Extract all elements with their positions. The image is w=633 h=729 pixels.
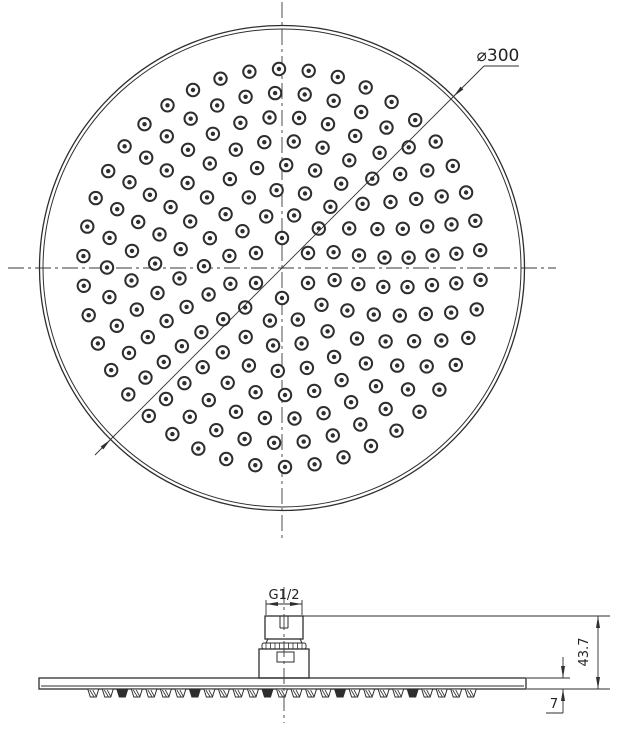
nozzle (335, 374, 347, 386)
nozzle (202, 288, 214, 300)
nozzle (391, 359, 403, 371)
nozzle (267, 339, 279, 351)
nozzle (239, 301, 251, 313)
nozzle (160, 393, 172, 405)
nozzle (184, 215, 196, 227)
nozzle (299, 187, 311, 199)
nozzle (356, 198, 368, 210)
nozzle (102, 165, 114, 177)
arrowhead-upper-right (454, 87, 464, 97)
nozzle (293, 112, 305, 124)
nozzle (217, 313, 229, 325)
nozzle (182, 144, 194, 156)
nozzle (161, 130, 173, 142)
nozzle (403, 141, 415, 153)
nozzle (409, 114, 421, 126)
nozzle (222, 377, 234, 389)
nozzle (149, 257, 161, 269)
nozzle (298, 435, 310, 447)
nozzle (408, 335, 420, 347)
nozzle (166, 428, 178, 440)
nozzle (378, 251, 390, 263)
arrowhead-thickness-top (561, 666, 565, 678)
nozzle (143, 410, 155, 422)
nozzle (132, 216, 144, 228)
nozzle (178, 377, 190, 389)
nozzle (210, 424, 222, 436)
nozzle (288, 209, 300, 221)
nozzle (435, 334, 447, 346)
nozzle (308, 458, 320, 470)
nozzle (139, 371, 151, 383)
nozzle (153, 228, 165, 240)
nozzle (474, 274, 486, 286)
nozzle (332, 71, 344, 83)
nozzle (279, 389, 291, 401)
nozzle (462, 332, 474, 344)
nozzle (394, 309, 406, 321)
diameter-dimension-label: ⌀300 (477, 46, 520, 66)
nozzle (243, 191, 255, 203)
nozzle (211, 99, 223, 111)
nozzle (327, 246, 339, 258)
nozzle (142, 331, 154, 343)
nozzle (180, 301, 192, 313)
nozzle (198, 260, 210, 272)
nozzle (125, 274, 137, 286)
nozzle (324, 201, 336, 213)
nozzle (351, 332, 363, 344)
nozzle (224, 173, 236, 185)
spray-nozzle-strip (88, 689, 476, 697)
nozzle (420, 308, 432, 320)
nozzle (240, 331, 252, 343)
nozzle (292, 313, 304, 325)
nozzle (250, 247, 262, 259)
arrowhead-thickness-bottom (561, 689, 565, 701)
nozzle (236, 225, 248, 237)
nozzle (207, 128, 219, 140)
nozzle (268, 437, 280, 449)
side-view: G1/2 43.7 7 (39, 587, 610, 723)
nozzle (295, 337, 307, 349)
nozzle (173, 272, 185, 284)
nozzle (249, 386, 261, 398)
serration-tooth (117, 689, 128, 697)
nozzle (219, 208, 231, 220)
nozzle (316, 142, 328, 154)
nozzle (280, 159, 292, 171)
nozzle (264, 314, 276, 326)
nozzle (394, 168, 406, 180)
nozzle (380, 403, 392, 415)
nozzle (474, 244, 486, 256)
nozzle (243, 66, 255, 78)
nozzle (402, 252, 414, 264)
nozzle (151, 287, 163, 299)
nozzle (101, 261, 113, 273)
nozzle (352, 278, 364, 290)
nozzle (379, 335, 391, 347)
nozzle (185, 113, 197, 125)
nozzle (138, 118, 150, 130)
nozzle (421, 220, 433, 232)
nozzle (426, 249, 438, 261)
nozzle (447, 160, 459, 172)
nozzle (118, 140, 130, 152)
nozzle (161, 164, 173, 176)
nozzle (83, 309, 95, 321)
nozzle (81, 220, 93, 232)
nozzle (184, 411, 196, 423)
nozzle (450, 359, 462, 371)
technical-drawing-sheet: ⌀300 (0, 0, 633, 729)
nozzle (260, 210, 272, 222)
serration-tooth (189, 689, 200, 697)
nozzle (276, 292, 288, 304)
nozzle (103, 232, 115, 244)
nozzle (258, 136, 270, 148)
nozzle (243, 359, 255, 371)
nozzle (105, 364, 117, 376)
nozzle (360, 357, 372, 369)
thread-dimension-label: G1/2 (269, 588, 300, 603)
nozzle (214, 73, 226, 85)
nozzle (224, 278, 236, 290)
nozzle (302, 277, 314, 289)
nozzle (353, 249, 365, 261)
nozzle (328, 351, 340, 363)
nozzle (303, 65, 315, 77)
nozzle (380, 121, 392, 133)
nozzle (299, 88, 311, 100)
nozzle (288, 412, 300, 424)
nozzle (270, 184, 282, 196)
nozzle (349, 130, 361, 142)
nozzle (273, 63, 285, 75)
nozzle (370, 380, 382, 392)
nozzle (360, 81, 372, 93)
nozzle (77, 250, 89, 262)
nozzle (160, 315, 172, 327)
nozzle (371, 223, 383, 235)
nozzle (90, 192, 102, 204)
nozzle (175, 243, 187, 255)
nozzle (123, 176, 135, 188)
nozzle (123, 347, 135, 359)
nozzle (204, 232, 216, 244)
nozzle (377, 281, 389, 293)
nozzle (426, 279, 438, 291)
nozzle (272, 365, 284, 377)
nozzle (192, 442, 204, 454)
nozzle (176, 340, 188, 352)
arrowhead-height-bottom (596, 677, 600, 689)
nozzle (250, 277, 262, 289)
nozzle (144, 189, 156, 201)
nozzle (279, 461, 291, 473)
nozzle (445, 218, 457, 230)
nozzle (421, 360, 433, 372)
nozzle (181, 177, 193, 189)
top-view: ⌀300 (8, 2, 556, 540)
nozzle (315, 299, 327, 311)
nozzle (450, 248, 462, 260)
nozzle (259, 412, 271, 424)
nozzle (373, 147, 385, 159)
nozzle (433, 384, 445, 396)
nozzle (355, 106, 367, 118)
arrowhead-height-top (596, 616, 600, 628)
nozzle (269, 87, 281, 99)
nozzle (131, 303, 143, 315)
nozzle (239, 91, 251, 103)
nozzle (195, 326, 207, 338)
arrowhead-lower-left (101, 440, 111, 450)
nozzle (223, 250, 235, 262)
nozzle (158, 356, 170, 368)
nozzle (366, 173, 378, 185)
nozzle (401, 281, 413, 293)
connector-base-notch (277, 652, 294, 662)
nozzle (430, 135, 442, 147)
nozzle (238, 433, 250, 445)
nozzle (111, 320, 123, 332)
nozzle (220, 453, 232, 465)
nozzle (161, 99, 173, 111)
disc-body (39, 678, 526, 689)
nozzle (204, 157, 216, 169)
serration-tooth (335, 689, 346, 697)
nozzle (230, 144, 242, 156)
nozzle (421, 164, 433, 176)
nozzle (460, 186, 472, 198)
nozzle (251, 162, 263, 174)
nozzle (203, 394, 215, 406)
nozzle (469, 215, 481, 227)
nozzle (327, 429, 339, 441)
nozzle (309, 164, 321, 176)
nozzle (317, 407, 329, 419)
nozzle (402, 383, 414, 395)
thickness-dimension-label: 7 (550, 697, 558, 712)
nozzle (384, 196, 396, 208)
nozzle (385, 96, 397, 108)
nozzle (328, 274, 340, 286)
serration-tooth (262, 689, 273, 697)
shower-head-drawing: ⌀300 (0, 0, 633, 729)
nozzle (249, 459, 261, 471)
nozzle (450, 277, 462, 289)
nozzle (122, 388, 134, 400)
nozzle (328, 95, 340, 107)
nozzle (345, 396, 357, 408)
nozzle (111, 203, 123, 215)
nozzle (263, 111, 275, 123)
nozzle (410, 193, 422, 205)
nozzle (354, 418, 366, 430)
nozzle (302, 247, 314, 259)
nozzle (343, 154, 355, 166)
nozzle (103, 291, 115, 303)
nozzle (313, 222, 325, 234)
nozzle (308, 385, 320, 397)
nozzle (187, 84, 199, 96)
serration-tooth (407, 689, 418, 697)
nozzle (92, 337, 104, 349)
thread-dimension: G1/2 (266, 588, 302, 615)
nozzle (197, 361, 209, 373)
nozzle (288, 135, 300, 147)
nozzle (322, 118, 334, 130)
nozzle (390, 425, 402, 437)
nozzle (397, 223, 409, 235)
nozzle (337, 451, 349, 463)
nozzle (341, 304, 353, 316)
nozzle (234, 117, 246, 129)
nozzle (365, 440, 377, 452)
nozzle (321, 325, 333, 337)
nozzle (217, 346, 229, 358)
nozzle (78, 280, 90, 292)
nozzle (140, 152, 152, 164)
nozzle (335, 178, 347, 190)
disc-outline (39, 678, 526, 689)
nozzle (343, 222, 355, 234)
nozzle (445, 306, 457, 318)
nozzle (301, 362, 313, 374)
nozzle (436, 190, 448, 202)
nozzle (230, 406, 242, 418)
thickness-dimension: 7 (527, 657, 570, 713)
nozzle (413, 406, 425, 418)
nozzle (164, 201, 176, 213)
height-dimension-label: 43.7 (577, 638, 592, 667)
nozzle (126, 245, 138, 257)
nozzle (201, 191, 213, 203)
nozzle (276, 232, 288, 244)
nozzle (368, 308, 380, 320)
nozzle (471, 303, 483, 315)
